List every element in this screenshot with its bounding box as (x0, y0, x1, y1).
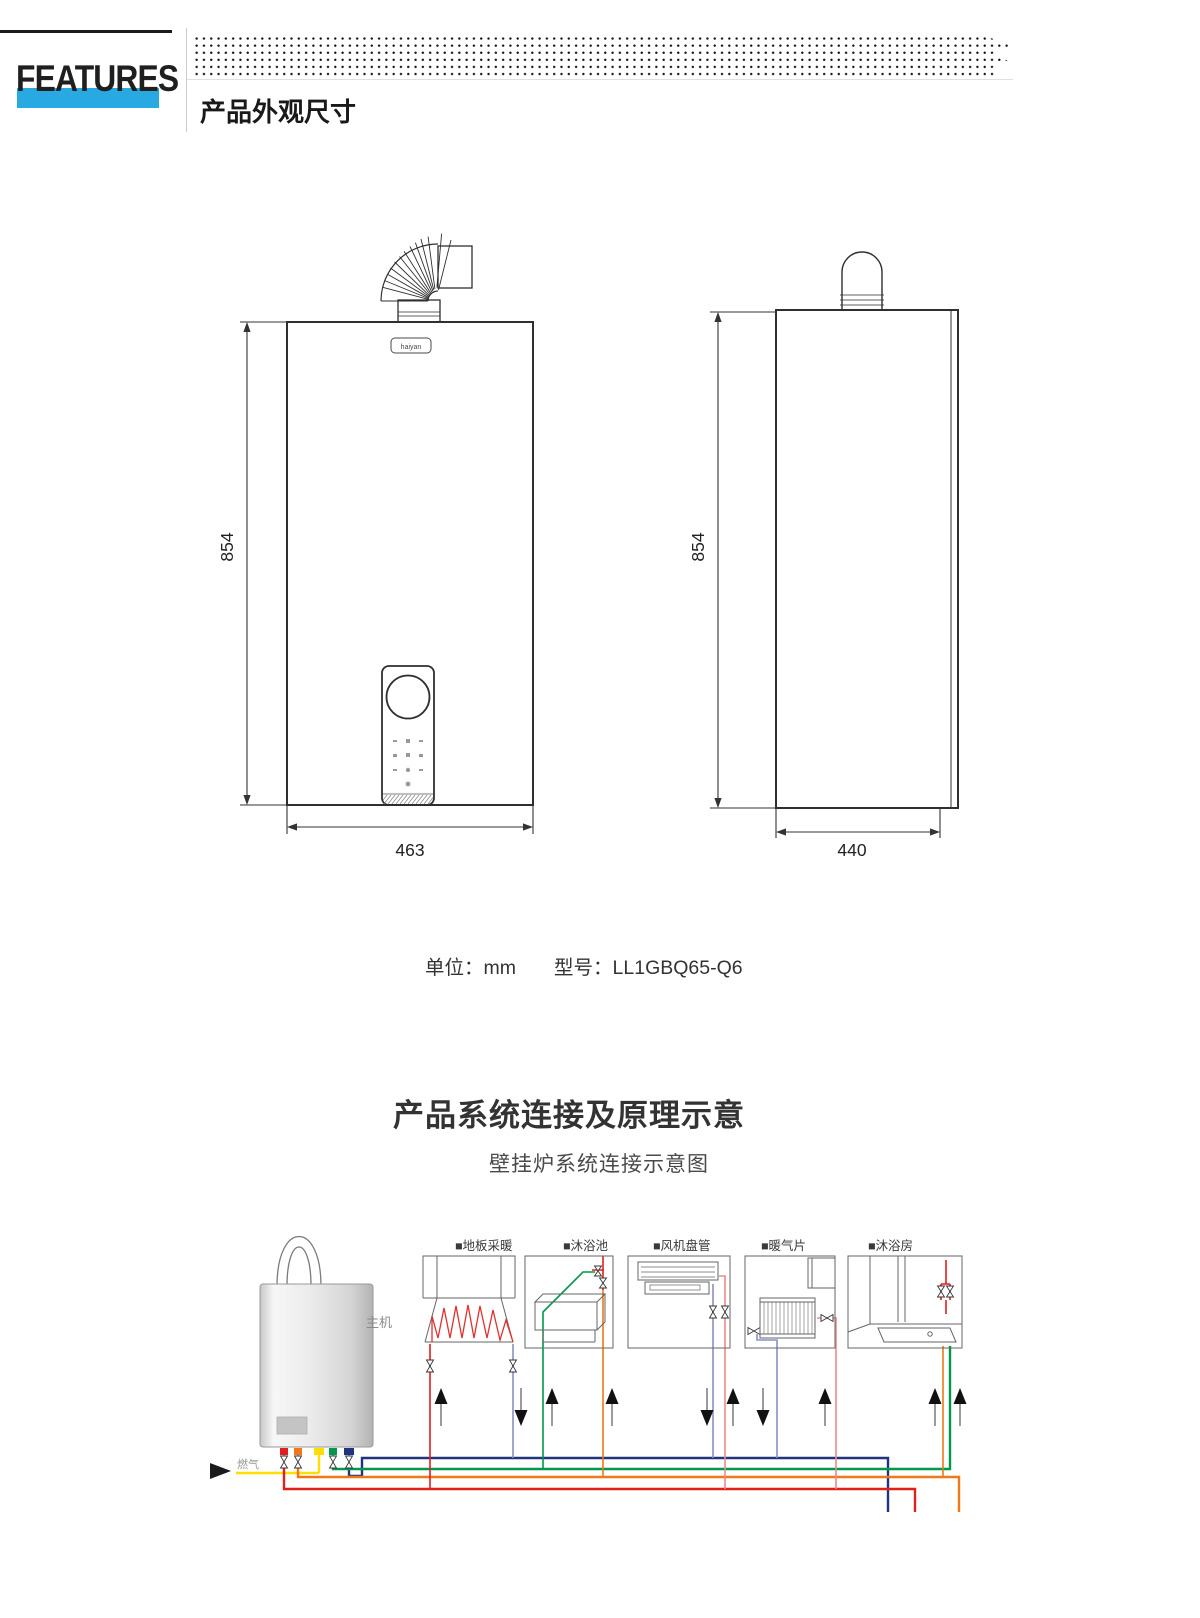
page: FEATURES 产品外观尺寸 (0, 0, 1200, 1618)
section2-title: 产品系统连接及原理示意 (393, 1090, 745, 1135)
front-height-dimension: 854 (217, 322, 287, 805)
front-width-dimension: 463 (287, 805, 533, 860)
panel-hatch-strip (380, 794, 435, 804)
label-bathtub: ■沐浴池 (563, 1239, 609, 1253)
boiler-label: 主机 (366, 1315, 392, 1330)
features-title: FEATURES (16, 58, 178, 100)
spec-line: 单位：mm 型号：LL1GBQ65-Q6 (425, 951, 743, 980)
corrugated-flue-elbow (381, 234, 472, 301)
brand-logo-badge: haiyan (391, 338, 431, 353)
gas-inlet-arrow-icon (210, 1463, 231, 1479)
appliance-shower-room (848, 1256, 962, 1348)
supply-bus-pipe (284, 1468, 915, 1512)
model-spec: 型号：LL1GBQ65-Q6 (554, 951, 743, 980)
valve-icons (281, 1266, 954, 1468)
side-depth-dimension: 440 (776, 808, 940, 860)
riser-pipes (430, 1256, 950, 1489)
boiler-connection-stubs (280, 1448, 354, 1458)
gas-label: 燃气 (237, 1457, 259, 1471)
panel-button-icons (393, 739, 423, 786)
appliance-fan-coil (628, 1256, 730, 1348)
appliance-labels: ■地板采暖 ■沐浴池 ■风机盘管 ■暖气片 ■沐浴房 (455, 1238, 913, 1253)
panel-display-circle (387, 676, 430, 719)
side-flue-pipe (840, 252, 884, 310)
label-radiator: ■暖气片 (761, 1238, 806, 1253)
flow-arrows (435, 1388, 967, 1426)
label-fan-coil: ■风机盘管 (653, 1238, 711, 1253)
boiler-window (277, 1417, 307, 1434)
system-diagram: 主机 (210, 1237, 967, 1513)
green-supply-pipe (333, 1346, 950, 1469)
brand-logo-text: haiyan (401, 344, 422, 351)
label-floor-heating: ■地板采暖 (455, 1239, 513, 1253)
boiler-unit (260, 1237, 373, 1448)
side-view-drawing: 854 440 (688, 252, 958, 860)
unit-spec: 单位：mm (425, 951, 516, 980)
floor-heating-coil (432, 1305, 513, 1342)
side-height-dimension: 854 (688, 312, 776, 808)
technical-drawing-canvas: haiyan (0, 0, 1200, 1618)
label-shower-room: ■沐浴房 (868, 1238, 913, 1253)
front-width-value: 463 (395, 840, 424, 860)
side-depth-value: 440 (837, 840, 866, 860)
appliance-radiator (745, 1256, 835, 1348)
control-panel (380, 666, 435, 805)
front-view-drawing: haiyan (217, 234, 533, 860)
section2-subtitle: 壁挂炉系统连接示意图 (489, 1148, 709, 1178)
boiler-hose-loop (277, 1237, 321, 1287)
front-height-value: 854 (217, 532, 237, 561)
appliance-floor-heating (423, 1256, 515, 1342)
side-height-value: 854 (688, 532, 708, 561)
